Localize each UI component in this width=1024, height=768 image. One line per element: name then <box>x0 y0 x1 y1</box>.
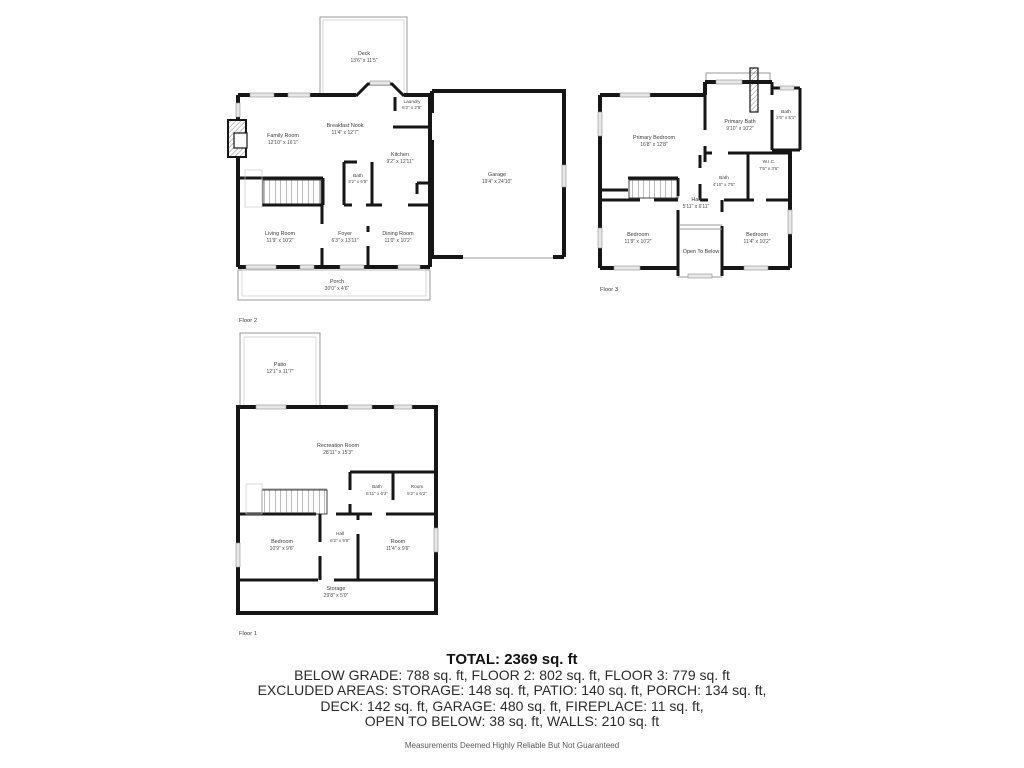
room-label-room-small: Room <box>411 484 424 489</box>
room-label-storage: Storage <box>327 586 346 592</box>
room-label-bath-f2: Bath <box>353 173 363 178</box>
room-label-bedroom-left: Bedroom <box>627 232 649 238</box>
room-label-kitchen: Kitchen <box>391 152 409 158</box>
room-dims-bedroom-right: 11'4" x 10'2" <box>743 239 770 245</box>
stairs-icon-floor1 <box>246 484 327 514</box>
floor-3-plan: Primary Bedroom 16'8" x 12'8" Primary Ba… <box>590 60 810 300</box>
area-line-excluded-1: EXCLUDED AREAS: STORAGE: 148 sq. ft, PAT… <box>0 683 1024 698</box>
floor-plan-page: { "floor2": { "label": "Floor 2", "rooms… <box>0 0 1024 768</box>
room-label-porch: Porch <box>330 279 344 285</box>
room-dims-living-room: 11'9" x 10'2" <box>266 238 293 244</box>
room-label-breakfast-nook: Breakfast Nook <box>327 123 364 129</box>
total-area-text: TOTAL: 2369 sq. ft <box>0 651 1024 668</box>
area-line-excluded-3: OPEN TO BELOW: 38 sq. ft, WALLS: 210 sq.… <box>0 714 1024 729</box>
chimney-icon <box>750 68 758 112</box>
room-dims-kitchen: 9'2" x 12'11" <box>386 159 413 165</box>
area-line-floors: BELOW GRADE: 788 sq. ft, FLOOR 2: 802 sq… <box>0 668 1024 683</box>
floor-3-caption: Floor 3 <box>600 287 618 293</box>
room-dims-bedroom-f1: 10'9" x 9'6" <box>270 546 295 552</box>
floor-1-caption: Floor 1 <box>239 631 257 637</box>
room-label-room-f1: Room <box>391 539 406 545</box>
area-line-excluded-2: DECK: 142 sq. ft, GARAGE: 480 sq. ft, FI… <box>0 699 1024 714</box>
room-label-hall-f1: Hall <box>336 531 344 536</box>
room-label-primary-bath: Primary Bath <box>724 119 755 125</box>
room-label-foyer: Foyer <box>338 231 352 237</box>
porch-outline <box>238 270 430 300</box>
room-dims-room-f1: 11'4" x 9'6" <box>386 546 410 552</box>
room-dims-room-small: 5'2" x 6'2" <box>407 491 427 496</box>
room-label-patio: Patio <box>274 362 286 368</box>
room-dims-hall-f1: 6'2" x 9'6" <box>330 538 350 543</box>
room-label-hall-f3: Hall <box>691 197 700 203</box>
area-summary: TOTAL: 2369 sq. ft BELOW GRADE: 788 sq. … <box>0 651 1024 750</box>
room-label-recreation-room: Recreation Room <box>317 443 359 449</box>
room-dims-dining-room: 11'0" x 10'2" <box>384 238 411 244</box>
floor-3-walls <box>600 82 800 276</box>
room-dims-breakfast-nook: 11'4" x 12'7" <box>331 130 358 136</box>
room-dims-bath-small: 2'5" x 5'1" <box>776 115 796 120</box>
stairs-icon-floor3 <box>629 180 678 198</box>
room-dims-wic: 7'6" x 3'6" <box>759 166 779 171</box>
room-label-bath-small: Bath <box>781 109 791 114</box>
room-dims-hall-f3: 5'11" x 6'11" <box>683 204 710 210</box>
room-dims-primary-bath: 9'10" x 10'2" <box>726 126 754 132</box>
room-label-bedroom-right: Bedroom <box>746 232 768 238</box>
room-label-bath-f3: Bath <box>719 175 729 180</box>
room-dims-garage: 19'4" x 24'10" <box>482 179 512 185</box>
fireplace-icon <box>228 120 247 157</box>
room-dims-storage: 29'8" x 5'0" <box>324 593 349 599</box>
room-dims-porch: 30'0" x 4'6" <box>325 286 350 292</box>
room-label-dining-room: Dining Room <box>382 231 414 237</box>
floor-1-plan: Patio 12'1" x 11'7" Recreation Room 28'1… <box>228 328 448 643</box>
room-dims-family-room: 12'10" x 16'1" <box>268 140 298 146</box>
room-dims-laundry: 5'2" x 2'9" <box>402 105 422 110</box>
room-dims-recreation-room: 28'11" x 15'3" <box>323 450 353 456</box>
disclaimer-text: Measurements Deemed Highly Reliable But … <box>0 741 1024 750</box>
room-label-living-room: Living Room <box>265 231 295 237</box>
room-dims-bath-f3: 4'10" x 7'5" <box>713 182 736 187</box>
room-label-bedroom-f1: Bedroom <box>271 539 293 545</box>
room-label-wic: W.I.C. <box>763 159 776 164</box>
room-dims-primary-bedroom: 16'8" x 12'8" <box>640 142 668 148</box>
room-dims-bath-f2: 3'2" x 6'9" <box>348 179 368 184</box>
room-label-open-to-below: Open To Below <box>683 249 720 255</box>
room-dims-bath-f1: 6'11" x 6'2" <box>366 491 388 496</box>
room-label-family-room: Family Room <box>267 133 299 139</box>
room-label-garage: Garage <box>488 172 506 178</box>
room-label-primary-bedroom: Primary Bedroom <box>633 135 675 141</box>
room-dims-bedroom-left: 11'9" x 10'2" <box>624 239 651 245</box>
room-label-deck: Deck <box>358 51 371 57</box>
floor-2-caption: Floor 2 <box>239 318 257 324</box>
room-dims-deck: 13'6" x 11'5" <box>350 58 377 64</box>
stairs-icon-floor2 <box>245 170 321 207</box>
room-label-bath-f1: Bath <box>372 484 382 489</box>
floor-2-plan: Deck 13'6" x 11'5" Laundry 5'2" x 2'9" B… <box>215 8 585 328</box>
room-label-laundry: Laundry <box>404 99 422 104</box>
room-dims-foyer: 6'3" x 13'11" <box>331 238 358 244</box>
room-dims-patio: 12'1" x 11'7" <box>266 369 293 375</box>
